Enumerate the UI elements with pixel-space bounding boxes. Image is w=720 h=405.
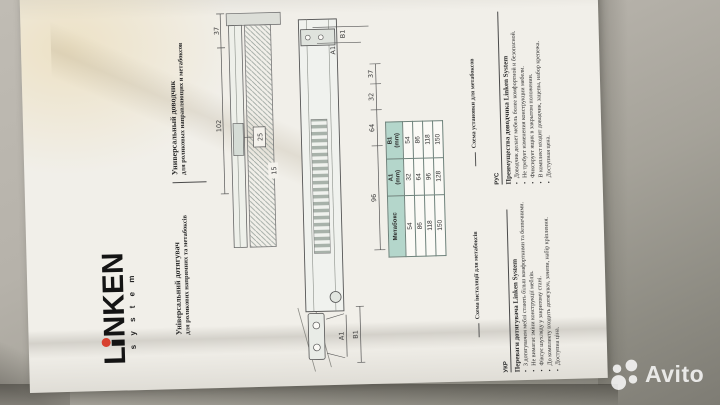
benefits-list-ua: З дотягувачем меблі стають більш комфорт…: [520, 199, 563, 372]
photo: LNKEN s y s t e m Універсальний дотягува…: [0, 0, 720, 405]
logo-letters-nken: NKEN: [96, 252, 131, 338]
dim-96: 96: [370, 194, 378, 202]
leaflet-content: LNKEN s y s t e m Універсальний дотягува…: [19, 0, 607, 393]
dim-25: 25: [256, 133, 264, 141]
hook-bracket: [308, 313, 325, 359]
scheme-caption-ru: Схема установки для метабоксов: [469, 58, 478, 166]
benefits-block-ru: РУС Преимущества доводчика Linken System…: [490, 1, 554, 184]
dim-a1-front: A1: [337, 331, 345, 340]
avito-watermark: Avito: [608, 357, 704, 391]
bracket-hole: [313, 322, 320, 329]
col-metabox: Метабокс: [387, 196, 405, 257]
front-panel: [226, 12, 280, 25]
dim-102: 102: [215, 120, 223, 133]
dim-37: 37: [212, 27, 220, 35]
benefits-list-ru: Доводчик делает мебель более комфортной …: [510, 1, 554, 184]
size-table: Метабокс A1 (mm) B1 (mm) 54 32 54 86 64 …: [385, 120, 446, 257]
drawing-side-view: A1 B1 A1 B1: [276, 15, 403, 374]
benefits-block-ua: УКР Переваги дотягувача Linken System З …: [499, 199, 563, 372]
col-b1: B1 (mm): [386, 122, 404, 159]
logo-red-dot-icon: [102, 338, 111, 347]
dim-64: 64: [368, 124, 376, 132]
table-row: 150 128 150: [432, 121, 446, 256]
instruction-leaflet: LNKEN s y s t e m Універсальний дотягува…: [19, 0, 607, 393]
avito-watermark-text: Avito: [645, 361, 704, 388]
dim-b1-front: B1: [351, 330, 359, 339]
caption-rule: [478, 323, 479, 337]
avito-logo-dots-icon: [608, 357, 642, 391]
closer-mechanism: [233, 123, 244, 155]
dim-37b: 37: [367, 70, 375, 78]
roller: [330, 291, 341, 302]
logo-letter-l: L: [99, 346, 132, 365]
brand-logo: LNKEN s y s t e m: [98, 252, 138, 365]
caption-rule: [474, 152, 475, 166]
dim-b1-rear: B1: [339, 30, 347, 39]
dim-a1-rear: A1: [329, 46, 337, 55]
dim-15: 15: [270, 166, 278, 174]
bracket-hole: [313, 344, 320, 351]
brand-logo-text: LNKEN: [98, 252, 131, 365]
closer-rack-teeth: [311, 119, 331, 253]
col-a1: A1 (mm): [386, 159, 404, 196]
logo-letter-i: [103, 337, 125, 347]
dim-32: 32: [367, 93, 375, 101]
